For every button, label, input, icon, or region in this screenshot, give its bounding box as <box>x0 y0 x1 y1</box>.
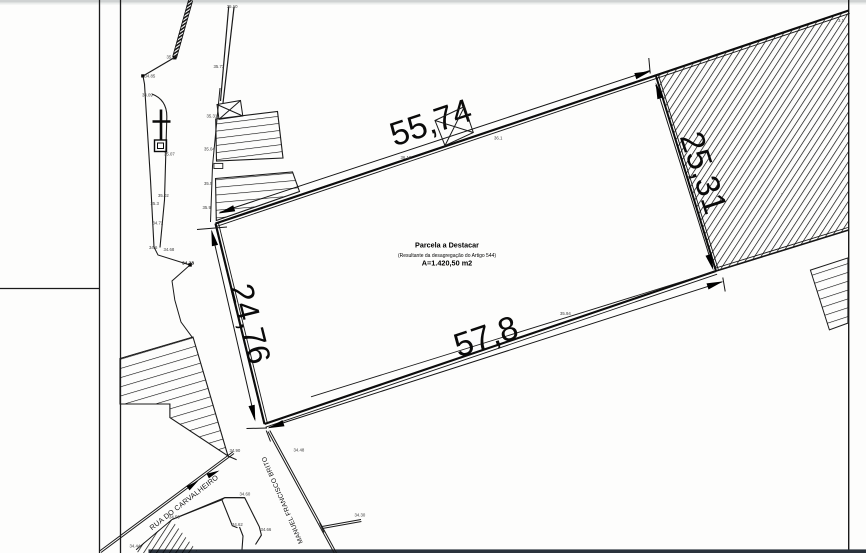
svg-text:35.94: 35.94 <box>560 311 571 316</box>
svg-text:34.62: 34.62 <box>232 522 243 527</box>
svg-text:35.05: 35.05 <box>167 55 178 60</box>
svg-text:34.30: 34.30 <box>355 513 366 518</box>
svg-text:34.60: 34.60 <box>240 492 251 497</box>
svg-text:35.31: 35.31 <box>207 114 218 119</box>
svg-text:34.44: 34.44 <box>130 544 141 549</box>
svg-text:35.5: 35.5 <box>204 181 213 186</box>
svg-text:34.48: 34.48 <box>294 448 305 453</box>
svg-text:3.1: 3.1 <box>838 18 845 23</box>
svg-text:35.73: 35.73 <box>214 64 225 69</box>
svg-text:34.90: 34.90 <box>230 448 241 453</box>
svg-text:35.3: 35.3 <box>151 201 160 206</box>
svg-text:35.04: 35.04 <box>204 147 215 152</box>
svg-text:34.28: 34.28 <box>182 261 194 267</box>
svg-text:35.9: 35.9 <box>203 205 212 210</box>
svg-text:34.66: 34.66 <box>261 527 272 532</box>
svg-text:34.85: 34.85 <box>145 74 156 79</box>
svg-text:34.68: 34.68 <box>164 247 175 252</box>
svg-text:36.18: 36.18 <box>401 155 412 160</box>
svg-text:36.1: 36.1 <box>494 136 503 141</box>
svg-text:35.10: 35.10 <box>227 4 238 9</box>
svg-text:35.07: 35.07 <box>164 152 175 157</box>
svg-text:34.59: 34.59 <box>169 515 180 520</box>
svg-text:A=1.420,50 m2: A=1.420,50 m2 <box>422 259 473 268</box>
svg-text:34.72: 34.72 <box>153 221 164 226</box>
svg-text:34.6: 34.6 <box>149 245 158 250</box>
svg-text:35.02: 35.02 <box>158 193 169 198</box>
svg-text:34.09: 34.09 <box>142 93 153 98</box>
svg-text:Parcela a Destacar: Parcela a Destacar <box>415 241 479 250</box>
